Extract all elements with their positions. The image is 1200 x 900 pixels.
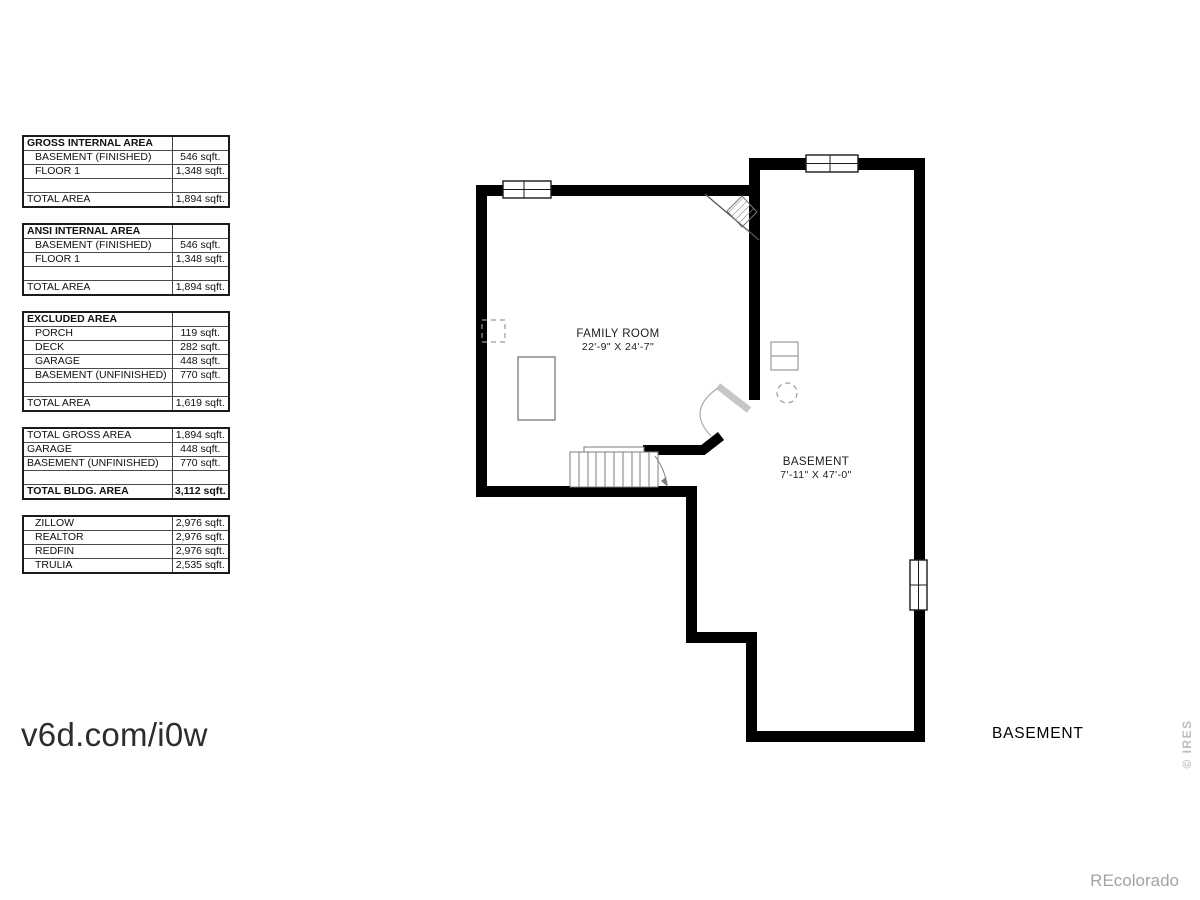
walls xyxy=(476,158,925,742)
door-arc xyxy=(700,388,718,436)
wall-family-bottom xyxy=(476,486,697,497)
basement-room-label: BASEMENT xyxy=(783,456,849,468)
family-room-label: FAMILY ROOM xyxy=(576,328,659,340)
recolorado-watermark: REcolorado xyxy=(1090,871,1179,891)
water-heater xyxy=(777,383,797,403)
wall-plan-bottom xyxy=(746,731,925,742)
wall-divider xyxy=(749,158,760,400)
window-family-top xyxy=(503,181,551,198)
basement-room-dimensions: 7'-11" X 47'-0" xyxy=(780,469,852,481)
wall-stub-left xyxy=(686,486,697,643)
wall-stair-landing xyxy=(643,436,721,450)
furnace xyxy=(771,342,798,370)
wall-family-left xyxy=(476,185,487,497)
sofa-table xyxy=(518,357,555,420)
floor-plan-page: GROSS INTERNAL AREA BASEMENT (FINISHED) … xyxy=(0,0,1200,900)
family-room-dimensions: 22'-9" X 24'-7" xyxy=(582,341,654,353)
floor-plan-drawing xyxy=(0,0,1200,900)
windows xyxy=(503,155,927,610)
window-right-wall xyxy=(910,560,927,610)
floor-title: BASEMENT xyxy=(992,725,1084,743)
wall-plan-right xyxy=(914,158,925,742)
door-swing xyxy=(700,386,749,436)
window-basement-top xyxy=(806,155,858,172)
door-leaf xyxy=(718,386,749,410)
stair-handrail xyxy=(584,447,644,452)
watermark-url: v6d.com/i0w xyxy=(21,716,208,754)
wall-lower-vertical xyxy=(746,632,757,742)
staircase xyxy=(570,447,668,487)
ires-credit: © IRES xyxy=(1180,712,1196,776)
